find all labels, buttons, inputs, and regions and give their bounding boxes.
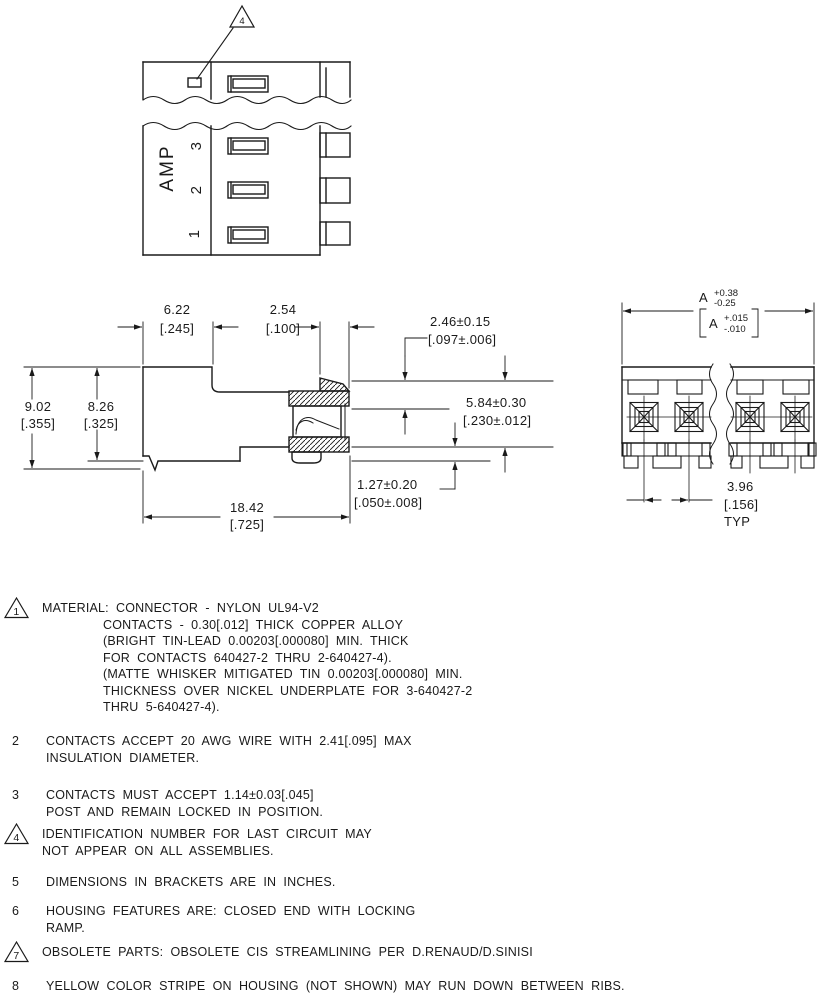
note-line: FOR CONTACTS 640427-2 THRU 2-640427-4). bbox=[42, 650, 472, 667]
note-8-number: 8 bbox=[8, 978, 46, 993]
note-2-text: CONTACTS ACCEPT 20 AWG WIRE WITH 2.41[.0… bbox=[46, 733, 412, 766]
note-line: NOT APPEAR ON ALL ASSEMBLIES. bbox=[42, 843, 372, 860]
svg-text:4: 4 bbox=[13, 832, 19, 844]
note-8-text: YELLOW COLOR STRIPE ON HOUSING (NOT SHOW… bbox=[46, 978, 625, 995]
note-line: INSULATION DIAMETER. bbox=[46, 750, 412, 767]
note-2-number: 2 bbox=[8, 733, 46, 748]
note-line: MATERIAL: CONNECTOR - NYLON UL94-V2 bbox=[42, 600, 472, 617]
note-4-flag: 4 bbox=[8, 826, 42, 846]
notes-section: 1 MATERIAL: CONNECTOR - NYLON UL94-V2 CO… bbox=[0, 0, 827, 1000]
note-1-flag: 1 bbox=[8, 600, 42, 620]
note-4: 4 IDENTIFICATION NUMBER FOR LAST CIRCUIT… bbox=[8, 826, 372, 859]
note-3-text: CONTACTS MUST ACCEPT 1.14±0.03[.045] POS… bbox=[46, 787, 323, 820]
note-5-number: 5 bbox=[8, 874, 46, 889]
note-6-text: HOUSING FEATURES ARE: CLOSED END WITH LO… bbox=[46, 903, 415, 936]
note-line: (BRIGHT TIN-LEAD 0.00203[.000080] MIN. T… bbox=[42, 633, 472, 650]
note-4-text: IDENTIFICATION NUMBER FOR LAST CIRCUIT M… bbox=[42, 826, 372, 859]
note-line: YELLOW COLOR STRIPE ON HOUSING (NOT SHOW… bbox=[46, 978, 625, 995]
note-7: 7 OBSOLETE PARTS: OBSOLETE CIS STREAMLIN… bbox=[8, 944, 533, 964]
note-6-number: 6 bbox=[8, 903, 46, 918]
note-line: RAMP. bbox=[46, 920, 415, 937]
note-1-text: MATERIAL: CONNECTOR - NYLON UL94-V2 CONT… bbox=[42, 600, 472, 716]
note-7-text: OBSOLETE PARTS: OBSOLETE CIS STREAMLININ… bbox=[42, 944, 533, 961]
note-line: IDENTIFICATION NUMBER FOR LAST CIRCUIT M… bbox=[42, 826, 372, 843]
note-line: CONTACTS MUST ACCEPT 1.14±0.03[.045] bbox=[46, 787, 323, 804]
note-line: THICKNESS OVER NICKEL UNDERPLATE FOR 3-6… bbox=[42, 683, 472, 700]
triangle-flag-icon: 4 bbox=[3, 822, 30, 846]
note-line: OBSOLETE PARTS: OBSOLETE CIS STREAMLININ… bbox=[42, 944, 533, 961]
note-line: POST AND REMAIN LOCKED IN POSITION. bbox=[46, 804, 323, 821]
svg-text:7: 7 bbox=[13, 950, 19, 962]
triangle-flag-icon: 1 bbox=[3, 596, 30, 620]
note-6: 6 HOUSING FEATURES ARE: CLOSED END WITH … bbox=[8, 903, 415, 936]
note-line: DIMENSIONS IN BRACKETS ARE IN INCHES. bbox=[46, 874, 336, 891]
note-3-number: 3 bbox=[8, 787, 46, 802]
engineering-drawing-page: { "top_view": { "brand": "AMP", "circuit… bbox=[0, 0, 827, 1000]
note-8: 8 YELLOW COLOR STRIPE ON HOUSING (NOT SH… bbox=[8, 978, 625, 995]
note-line: THRU 5-640427-4). bbox=[42, 699, 472, 716]
note-line: CONTACTS - 0.30[.012] THICK COPPER ALLOY bbox=[42, 617, 472, 634]
note-line: CONTACTS ACCEPT 20 AWG WIRE WITH 2.41[.0… bbox=[46, 733, 412, 750]
note-line: HOUSING FEATURES ARE: CLOSED END WITH LO… bbox=[46, 903, 415, 920]
triangle-flag-icon: 7 bbox=[3, 940, 30, 964]
svg-text:1: 1 bbox=[13, 606, 19, 618]
note-5: 5 DIMENSIONS IN BRACKETS ARE IN INCHES. bbox=[8, 874, 336, 891]
note-1: 1 MATERIAL: CONNECTOR - NYLON UL94-V2 CO… bbox=[8, 600, 472, 716]
note-line: (MATTE WHISKER MITIGATED TIN 0.00203[.00… bbox=[42, 666, 472, 683]
note-3: 3 CONTACTS MUST ACCEPT 1.14±0.03[.045] P… bbox=[8, 787, 323, 820]
note-5-text: DIMENSIONS IN BRACKETS ARE IN INCHES. bbox=[46, 874, 336, 891]
note-7-flag: 7 bbox=[8, 944, 42, 964]
note-2: 2 CONTACTS ACCEPT 20 AWG WIRE WITH 2.41[… bbox=[8, 733, 412, 766]
